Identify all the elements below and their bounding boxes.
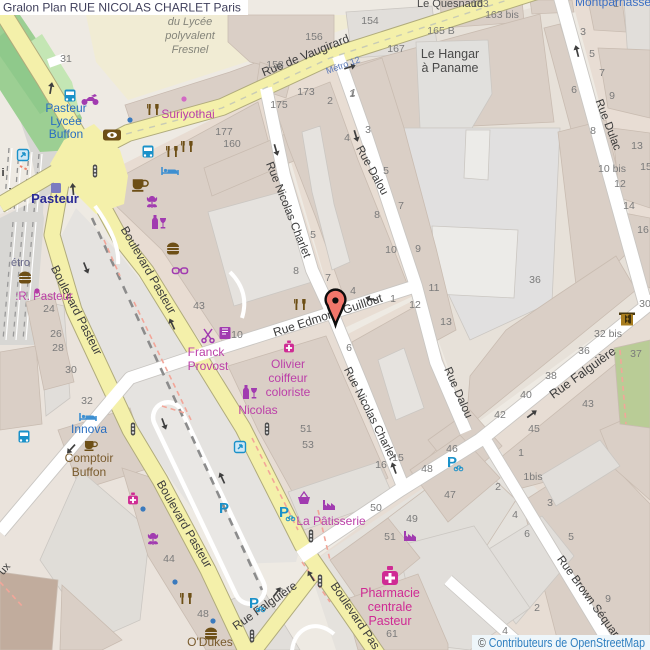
svg-text:175: 175 xyxy=(270,99,288,111)
svg-text:31: 31 xyxy=(60,53,72,65)
svg-text:48: 48 xyxy=(197,608,209,620)
svg-text:30: 30 xyxy=(639,298,650,310)
svg-text:Pasteur: Pasteur xyxy=(45,101,86,115)
svg-text:173: 173 xyxy=(297,86,315,98)
svg-text:Provost: Provost xyxy=(188,359,229,373)
svg-text:2: 2 xyxy=(327,95,333,107)
svg-text:4: 4 xyxy=(350,285,356,297)
svg-text:Innova: Innova xyxy=(71,422,107,436)
svg-text:Buffon: Buffon xyxy=(72,465,106,479)
svg-text:Franck: Franck xyxy=(188,345,226,359)
svg-text::R. Pasteur: :R. Pasteur xyxy=(15,291,73,303)
svg-text:5: 5 xyxy=(383,165,389,177)
svg-text:© Contributeurs de OpenStreetM: © Contributeurs de OpenStreetMap xyxy=(478,636,645,650)
svg-text:14: 14 xyxy=(623,200,635,212)
svg-text:étro: étro xyxy=(11,257,30,269)
svg-text:53: 53 xyxy=(302,439,314,451)
svg-text:4: 4 xyxy=(512,509,518,521)
svg-text:Suriyothai: Suriyothai xyxy=(161,107,214,121)
svg-text:Lycée: Lycée xyxy=(50,114,82,128)
svg-text:1bis: 1bis xyxy=(523,471,542,483)
svg-text:32: 32 xyxy=(81,395,93,407)
svg-text:51: 51 xyxy=(384,531,396,543)
svg-text:38: 38 xyxy=(545,370,557,382)
svg-text:6: 6 xyxy=(524,528,530,540)
svg-text:Pasteur: Pasteur xyxy=(368,614,411,628)
svg-text:15: 15 xyxy=(392,452,404,464)
svg-text:40: 40 xyxy=(520,389,532,401)
svg-text:Le Hangar: Le Hangar xyxy=(421,47,479,61)
svg-text:7: 7 xyxy=(599,67,605,79)
svg-text:30: 30 xyxy=(65,364,77,376)
svg-text:28: 28 xyxy=(52,342,64,354)
svg-text:24: 24 xyxy=(43,303,55,315)
svg-text:10 bis: 10 bis xyxy=(598,163,626,175)
svg-text:61: 61 xyxy=(386,628,398,640)
svg-text:6: 6 xyxy=(346,342,352,354)
svg-text:160: 160 xyxy=(223,138,241,150)
svg-text:P: P xyxy=(447,454,457,471)
svg-text:50: 50 xyxy=(370,502,382,514)
svg-text:8: 8 xyxy=(374,209,380,221)
svg-text:3: 3 xyxy=(547,497,553,509)
svg-text:Nicolas: Nicolas xyxy=(238,403,277,417)
svg-text:8: 8 xyxy=(590,125,596,137)
svg-text:165 B: 165 B xyxy=(427,25,454,37)
svg-text:177: 177 xyxy=(215,126,233,138)
svg-text:Pharmacie: Pharmacie xyxy=(360,586,420,600)
svg-text:P: P xyxy=(249,595,259,612)
svg-text:51: 51 xyxy=(300,423,312,435)
svg-text:Le Quesnaud: Le Quesnaud xyxy=(417,0,483,10)
svg-text:15: 15 xyxy=(640,161,650,173)
svg-text:i: i xyxy=(1,167,4,179)
svg-text:8: 8 xyxy=(293,265,299,277)
svg-text:36: 36 xyxy=(578,345,590,357)
svg-text:11: 11 xyxy=(429,282,440,294)
svg-text:43: 43 xyxy=(193,300,205,312)
svg-text:10: 10 xyxy=(231,329,243,341)
svg-text:163 bis: 163 bis xyxy=(485,9,519,21)
svg-text:47: 47 xyxy=(444,489,456,501)
svg-text:6: 6 xyxy=(571,84,577,96)
svg-text:2: 2 xyxy=(495,481,501,493)
svg-text:Fresnel: Fresnel xyxy=(172,44,209,56)
svg-text:3: 3 xyxy=(365,124,371,136)
svg-text:polyvalent: polyvalent xyxy=(164,30,215,42)
svg-text:5: 5 xyxy=(568,531,574,543)
svg-text:13: 13 xyxy=(631,140,643,152)
svg-text:9: 9 xyxy=(605,593,611,605)
svg-text:Pasteur: Pasteur xyxy=(31,191,79,206)
svg-text:coloriste: coloriste xyxy=(266,385,311,399)
svg-text:coiffeur: coiffeur xyxy=(268,371,307,385)
svg-text:12: 12 xyxy=(409,299,421,311)
svg-text:43: 43 xyxy=(582,398,594,410)
svg-text:48: 48 xyxy=(421,463,433,475)
svg-text:10: 10 xyxy=(385,244,397,256)
svg-text:P: P xyxy=(219,500,229,517)
svg-text:13: 13 xyxy=(440,316,452,328)
svg-text:167: 167 xyxy=(387,43,405,55)
svg-text:7: 7 xyxy=(325,272,331,284)
svg-text:158: 158 xyxy=(266,59,284,71)
svg-text:2: 2 xyxy=(534,602,540,614)
svg-text:12: 12 xyxy=(614,178,626,190)
svg-text:Gralon Plan RUE NICOLAS CHARLE: Gralon Plan RUE NICOLAS CHARLET Paris xyxy=(3,1,241,15)
svg-text:3: 3 xyxy=(580,26,586,38)
svg-text:156: 156 xyxy=(305,31,323,43)
svg-text:26: 26 xyxy=(50,328,62,340)
svg-text:P: P xyxy=(279,504,289,521)
svg-text:1: 1 xyxy=(518,447,524,459)
svg-text:Comptoir: Comptoir xyxy=(65,451,114,465)
svg-text:Montparnasse: Montparnasse xyxy=(575,0,650,9)
svg-text:Buffon: Buffon xyxy=(49,127,83,141)
svg-text:49: 49 xyxy=(406,513,418,525)
svg-text:La Pâtisserie: La Pâtisserie xyxy=(296,514,366,528)
svg-text:9: 9 xyxy=(415,243,421,255)
svg-text:154: 154 xyxy=(361,15,379,27)
svg-text:Olivier: Olivier xyxy=(271,357,305,371)
svg-text:du Lycée: du Lycée xyxy=(168,16,212,28)
svg-text:5: 5 xyxy=(310,229,316,241)
svg-text:4: 4 xyxy=(344,132,350,144)
svg-text:42: 42 xyxy=(494,409,506,421)
svg-text:45: 45 xyxy=(528,423,540,435)
svg-text:9: 9 xyxy=(609,90,615,102)
svg-text:16: 16 xyxy=(637,224,649,236)
svg-text:7: 7 xyxy=(398,200,404,212)
svg-text:O'Dukes: O'Dukes xyxy=(187,635,233,649)
svg-text:centrale: centrale xyxy=(368,600,413,614)
svg-text:16: 16 xyxy=(375,459,387,471)
svg-text:37: 37 xyxy=(630,348,642,360)
svg-text:1: 1 xyxy=(390,293,396,305)
svg-text:à Paname: à Paname xyxy=(422,61,479,75)
svg-text:1: 1 xyxy=(349,88,355,100)
svg-text:44: 44 xyxy=(163,553,175,565)
svg-text:32 bis: 32 bis xyxy=(594,328,622,340)
svg-text:36: 36 xyxy=(529,274,541,286)
svg-text:5: 5 xyxy=(589,48,595,60)
